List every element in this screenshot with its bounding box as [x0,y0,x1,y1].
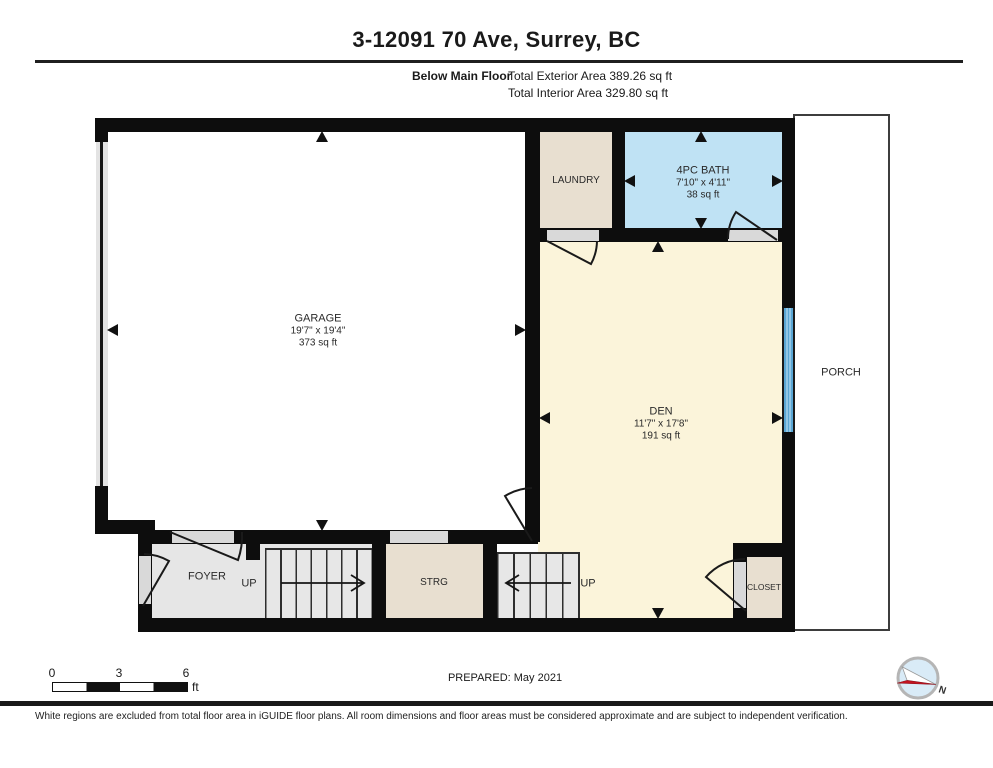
door-opening [547,230,599,241]
compass-needle [897,667,938,693]
wall [138,618,795,632]
porch-label: PORCH [821,366,861,379]
wall [612,132,625,230]
bath-label: 4PC BATH 7'10" x 4'11" 38 sq ft [676,164,730,201]
scale-tick-0: 0 [49,666,56,680]
wall [246,530,260,560]
door-opening [728,230,778,241]
measure-arrow-left [107,324,118,336]
door-opening [172,531,234,543]
wall [372,544,386,632]
foyer-label: FOYER [188,570,226,583]
laundry-label: LAUNDRY [552,175,600,187]
garage-door [96,142,108,486]
measure-arrow-up [316,131,328,142]
up-label-left: UP [241,577,256,590]
room-area: 373 sq ft [291,338,346,350]
closet-label: CLOSET [747,582,781,592]
stairs-up-left-run [497,552,580,620]
room-dims: 19'7" x 19'4" [291,326,346,338]
door-opening [390,531,448,543]
door-opening [734,562,746,608]
room-area: 191 sq ft [634,431,688,443]
storage-label: STRG [420,577,448,589]
room-area: 38 sq ft [676,190,730,202]
room-name: GARAGE [291,312,346,325]
scale-bar [52,682,188,692]
room-dims: 7'10" x 4'11" [676,178,730,190]
window [782,308,795,432]
compass-icon: N [897,658,947,698]
garage-label: GARAGE 19'7" x 19'4" 373 sq ft [291,312,346,349]
floor-plan: N GARAGE 19'7" x 19'4" 373 sq ft LAUNDRY… [0,0,993,768]
scale-tick-6: 6 [183,666,190,680]
disclaimer-text: White regions are excluded from total fl… [35,711,965,722]
room-dims: 11'7" x 17'8" [634,419,688,431]
den-label: DEN 11'7" x 17'8" 191 sq ft [634,405,688,442]
footer-divider [0,701,993,706]
floorplan-page: 3-12091 70 Ave, Surrey, BC Below Main Fl… [0,0,993,768]
wall [525,132,540,542]
wall [95,118,108,142]
room-name: DEN [634,405,688,418]
wall [95,118,795,132]
compass-north-label: N [937,684,947,697]
scale-tick-3: 3 [116,666,123,680]
wall [483,544,497,632]
room-name: 4PC BATH [676,164,730,177]
prepared-date: PREPARED: May 2021 [405,672,605,684]
scale-unit: ft [192,680,199,694]
stairs-up-right-run [265,548,372,620]
up-label-right: UP [580,577,595,590]
door-opening [139,556,151,604]
